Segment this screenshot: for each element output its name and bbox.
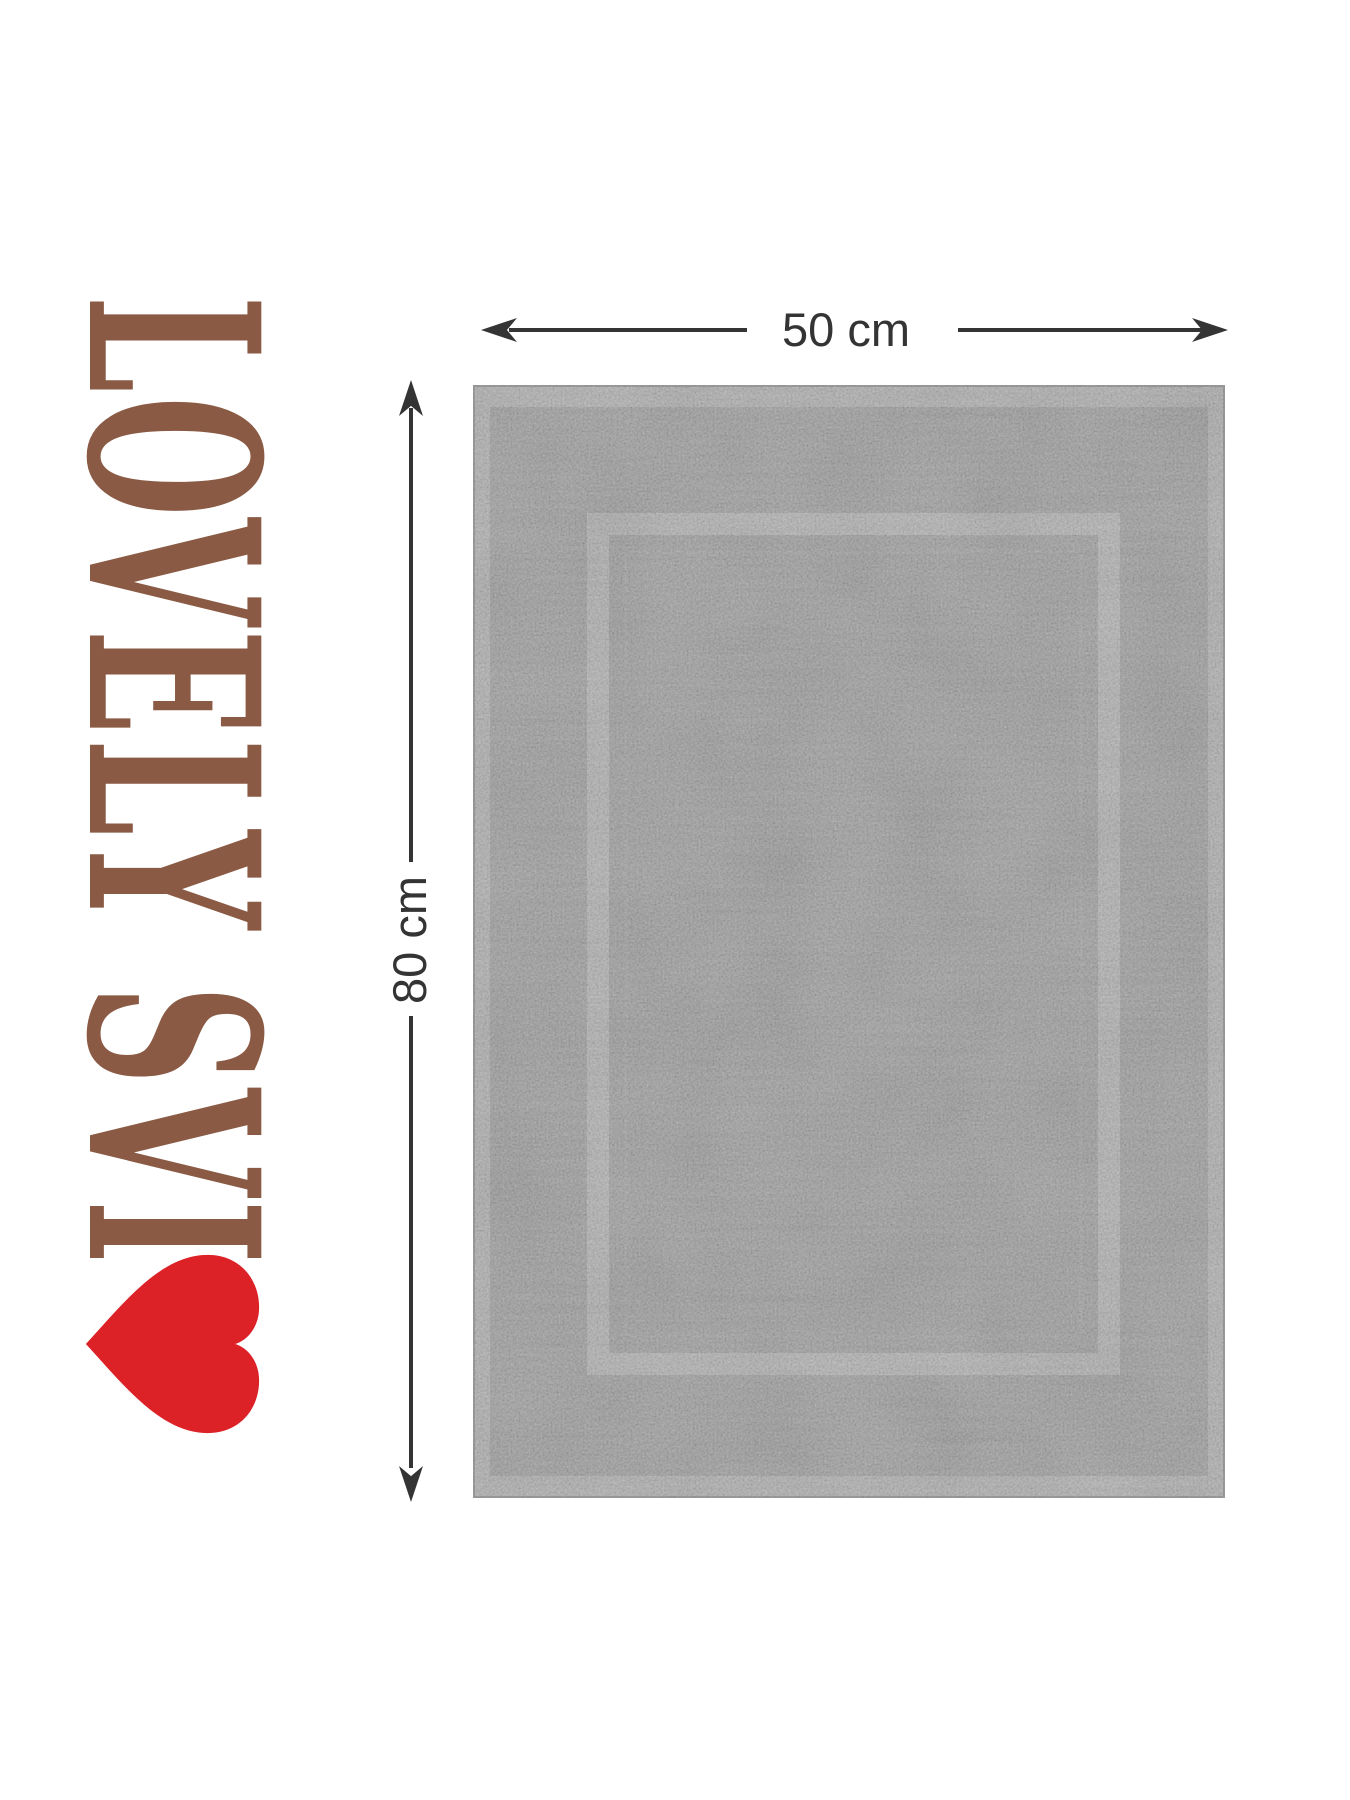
width-dimension-line-right xyxy=(958,328,1202,332)
brand-logo: LOVELY SVI xyxy=(62,295,282,1443)
bath-mat xyxy=(473,385,1225,1498)
height-dimension-label: 80 cm xyxy=(382,840,438,1040)
height-dimension-line-bottom xyxy=(409,1016,413,1468)
width-dimension-label: 50 cm xyxy=(746,302,946,358)
height-dimension-line-top xyxy=(409,408,413,862)
page-root: { "brand": { "name": "LOVELY SVI", "text… xyxy=(0,0,1350,1800)
heart-icon xyxy=(73,1245,271,1443)
heart-shape xyxy=(86,1255,259,1433)
brand-text: LOVELY SVI xyxy=(62,295,282,1268)
brand-text-box: LOVELY SVI xyxy=(62,295,282,1185)
mat-texture-grain xyxy=(473,385,1225,1498)
width-dimension-line-left xyxy=(509,328,747,332)
arrow-down-head-icon xyxy=(399,1466,423,1502)
